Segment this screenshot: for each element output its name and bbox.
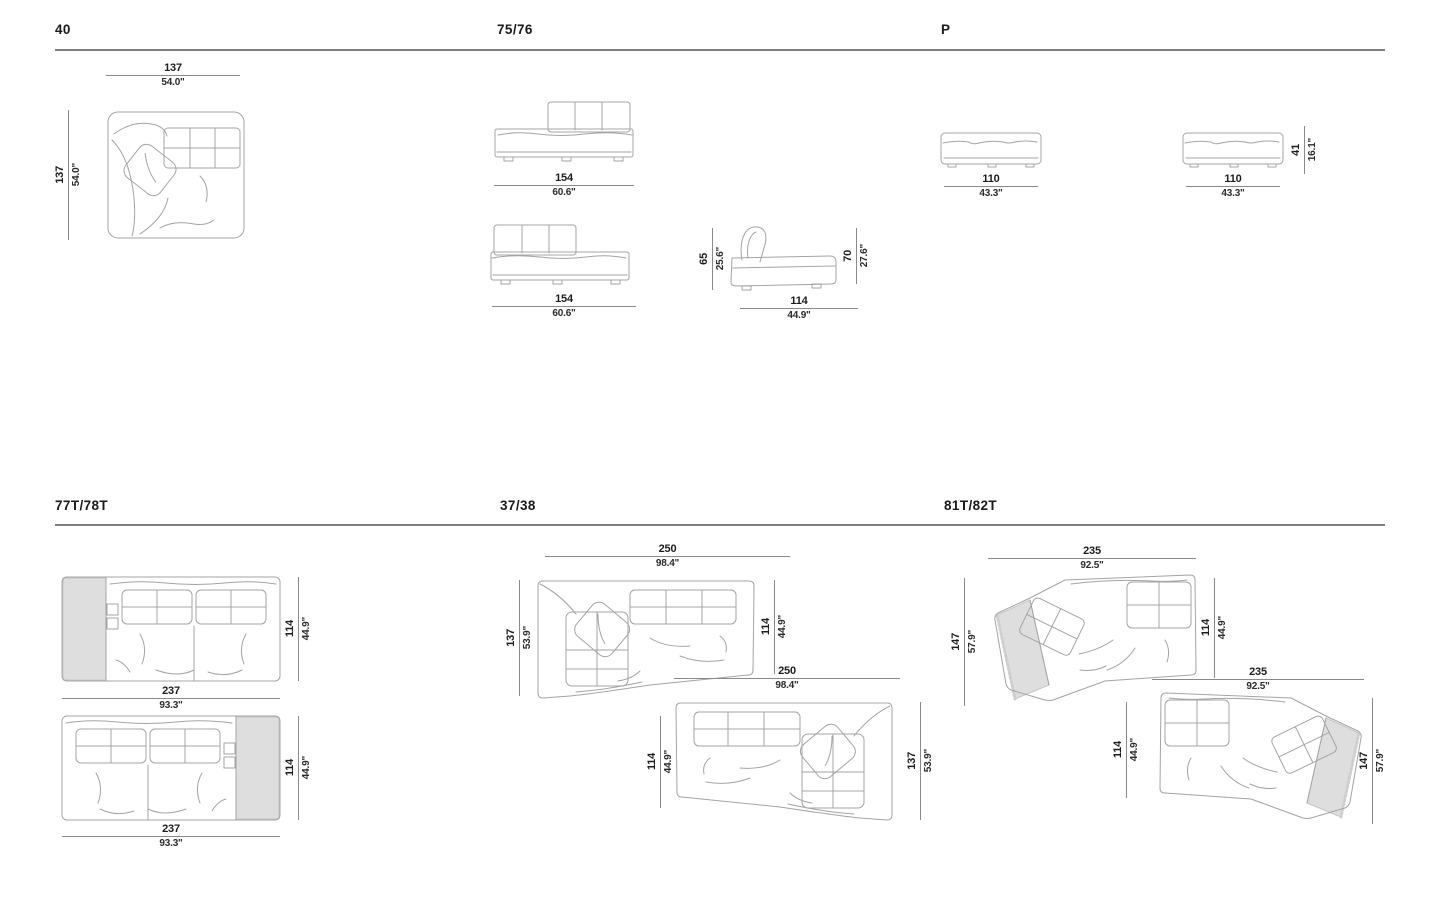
sofa-82t-top-view-drawing: [1140, 688, 1372, 830]
dim-cm: 250: [778, 665, 796, 677]
dim-line: [492, 306, 636, 307]
dim-cm: 114: [790, 295, 807, 307]
dim-line: [298, 716, 299, 820]
dim-depth-side: 114 44.9": [740, 295, 858, 321]
dim-depth-77t-2: 114 44.9": [284, 716, 312, 820]
section-title-75-76: 75/76: [497, 22, 533, 37]
dim-depth-left-37-1: 137 53.9": [505, 580, 533, 696]
dim-depth-40: 137 54.0": [54, 110, 82, 240]
dim-cm: 114: [284, 620, 296, 637]
dim-cm: 137: [505, 629, 517, 647]
dim-cm: 114: [1200, 619, 1212, 636]
dim-line: [774, 580, 775, 674]
dim-inches: 44.9": [1129, 738, 1140, 761]
sofa-77t-top-view-drawing: [60, 574, 282, 684]
dim-inches: 57.9": [1375, 749, 1386, 772]
dim-cm: 110: [1224, 173, 1241, 185]
dim-inches: 60.6": [552, 308, 575, 319]
dim-depth-right-37-1: 114 44.9": [760, 580, 788, 674]
catalog-dimension-page: 40 75/76 P 77T/78T 37/38 81T/82T 137 54.…: [0, 0, 1440, 900]
dim-inches: 54.0": [71, 163, 82, 186]
section-title-37-38: 37/38: [500, 498, 536, 513]
dim-width-76: 154 60.6": [492, 293, 636, 319]
dim-line: [1186, 186, 1280, 187]
dim-inches: 44.9": [777, 615, 788, 638]
dim-inches: 43.3": [1221, 188, 1244, 199]
dim-line: [1152, 679, 1364, 680]
dim-line: [660, 716, 661, 808]
pouf-front-view-drawing: [1180, 126, 1286, 174]
sofa-40-top-view-drawing: [104, 106, 248, 242]
dim-inches: 43.3": [979, 188, 1002, 199]
dim-cm: 114: [760, 618, 772, 635]
dim-cm: 110: [982, 173, 999, 185]
sofa-side-view-drawing: [726, 220, 844, 294]
dim-width-77t-1: 237 93.3": [62, 685, 280, 711]
dim-cm: 147: [1358, 752, 1370, 770]
dim-inches: 53.9": [522, 626, 533, 649]
sofa-75-front-view-drawing: [492, 97, 636, 167]
dim-depth-right-81t-2: 147 57.9": [1358, 698, 1386, 824]
dim-inches: 53.9": [923, 749, 934, 772]
dim-inches: 16.1": [1307, 138, 1318, 161]
dim-cm: 237: [162, 685, 180, 697]
dim-cm: 114: [284, 759, 296, 776]
dim-cm: 70: [842, 250, 854, 262]
dim-width-81t-1: 235 92.5": [988, 545, 1196, 571]
dim-inches: 27.6": [859, 244, 870, 267]
dim-line: [545, 556, 790, 557]
dim-depth-right-37-2: 137 53.9": [906, 702, 934, 820]
dim-inches: 44.9": [301, 756, 312, 779]
dim-cm: 65: [698, 253, 710, 265]
dim-width-pouf-2: 110 43.3": [1186, 173, 1280, 199]
dim-cm: 235: [1083, 545, 1101, 557]
dim-inches: 44.9": [1217, 616, 1228, 639]
dim-line: [988, 558, 1196, 559]
dim-cm: 114: [1112, 741, 1124, 758]
dim-width-37-1: 250 98.4": [545, 543, 790, 569]
dim-line: [68, 110, 69, 240]
dim-inches: 98.4": [775, 680, 798, 691]
dim-cm: 114: [646, 753, 658, 770]
dim-cm: 154: [555, 172, 573, 184]
dim-depth-left-81t-1: 147 57.9": [950, 578, 978, 706]
section-rule-top: [55, 49, 1385, 51]
dim-line: [106, 75, 240, 76]
dim-line: [1304, 126, 1305, 174]
dim-inches: 44.9": [301, 617, 312, 640]
dim-line: [944, 186, 1038, 187]
dim-line: [1126, 702, 1127, 798]
dim-line: [856, 228, 857, 284]
dim-cm: 147: [950, 633, 962, 651]
dim-line: [740, 308, 858, 309]
dim-inches: 93.3": [159, 700, 182, 711]
dim-depth-left-37-2: 114 44.9": [646, 716, 674, 808]
dim-cm: 137: [906, 752, 918, 770]
dim-inches: 60.6": [552, 187, 575, 198]
dim-line: [298, 577, 299, 681]
dim-width-pouf-1: 110 43.3": [944, 173, 1038, 199]
dim-cm: 41: [1290, 144, 1302, 156]
section-title-p: P: [941, 22, 950, 37]
sofa-78t-top-view-drawing: [60, 713, 282, 823]
dim-line: [62, 836, 280, 837]
section-title-81t-82t: 81T/82T: [944, 498, 997, 513]
pouf-front-view-drawing: [938, 126, 1044, 174]
dim-line: [1214, 578, 1215, 678]
dim-cm: 250: [659, 543, 677, 555]
dim-height-pouf: 41 16.1": [1290, 126, 1318, 174]
dim-cm: 137: [164, 62, 182, 74]
dim-depth-77t-1: 114 44.9": [284, 577, 312, 681]
dim-width-77t-2: 237 93.3": [62, 823, 280, 849]
dim-line: [62, 698, 280, 699]
dim-width-75: 154 60.6": [494, 172, 634, 198]
dim-line: [712, 228, 713, 290]
dim-inches: 44.9": [663, 750, 674, 773]
dim-seat-height: 65 25.6": [698, 228, 726, 290]
dim-line: [1372, 698, 1373, 824]
dim-cm: 235: [1249, 666, 1267, 678]
section-title-40: 40: [55, 22, 71, 37]
dim-depth-left-81t-2: 114 44.9": [1112, 702, 1140, 798]
sofa-38-top-view-drawing: [666, 698, 900, 824]
dim-inches: 25.6": [715, 247, 726, 270]
dim-cm: 237: [162, 823, 180, 835]
dim-inches: 57.9": [967, 630, 978, 653]
dim-inches: 54.0": [161, 77, 184, 88]
dim-line: [674, 678, 900, 679]
dim-back-height: 70 27.6": [842, 228, 870, 284]
dim-depth-right-81t-1: 114 44.9": [1200, 578, 1228, 678]
sofa-76-front-view-drawing: [486, 220, 632, 290]
dim-line: [519, 580, 520, 696]
dim-width-37-2: 250 98.4": [674, 665, 900, 691]
dim-inches: 93.3": [159, 838, 182, 849]
dim-cm: 154: [555, 293, 573, 305]
dim-inches: 44.9": [787, 310, 810, 321]
dim-line: [964, 578, 965, 706]
dim-line: [920, 702, 921, 820]
dim-width-40: 137 54.0": [106, 62, 240, 88]
section-rule-bottom: [55, 524, 1385, 526]
section-title-77t-78t: 77T/78T: [55, 498, 108, 513]
dim-line: [494, 185, 634, 186]
dim-inches: 98.4": [656, 558, 679, 569]
dim-cm: 137: [54, 166, 66, 184]
